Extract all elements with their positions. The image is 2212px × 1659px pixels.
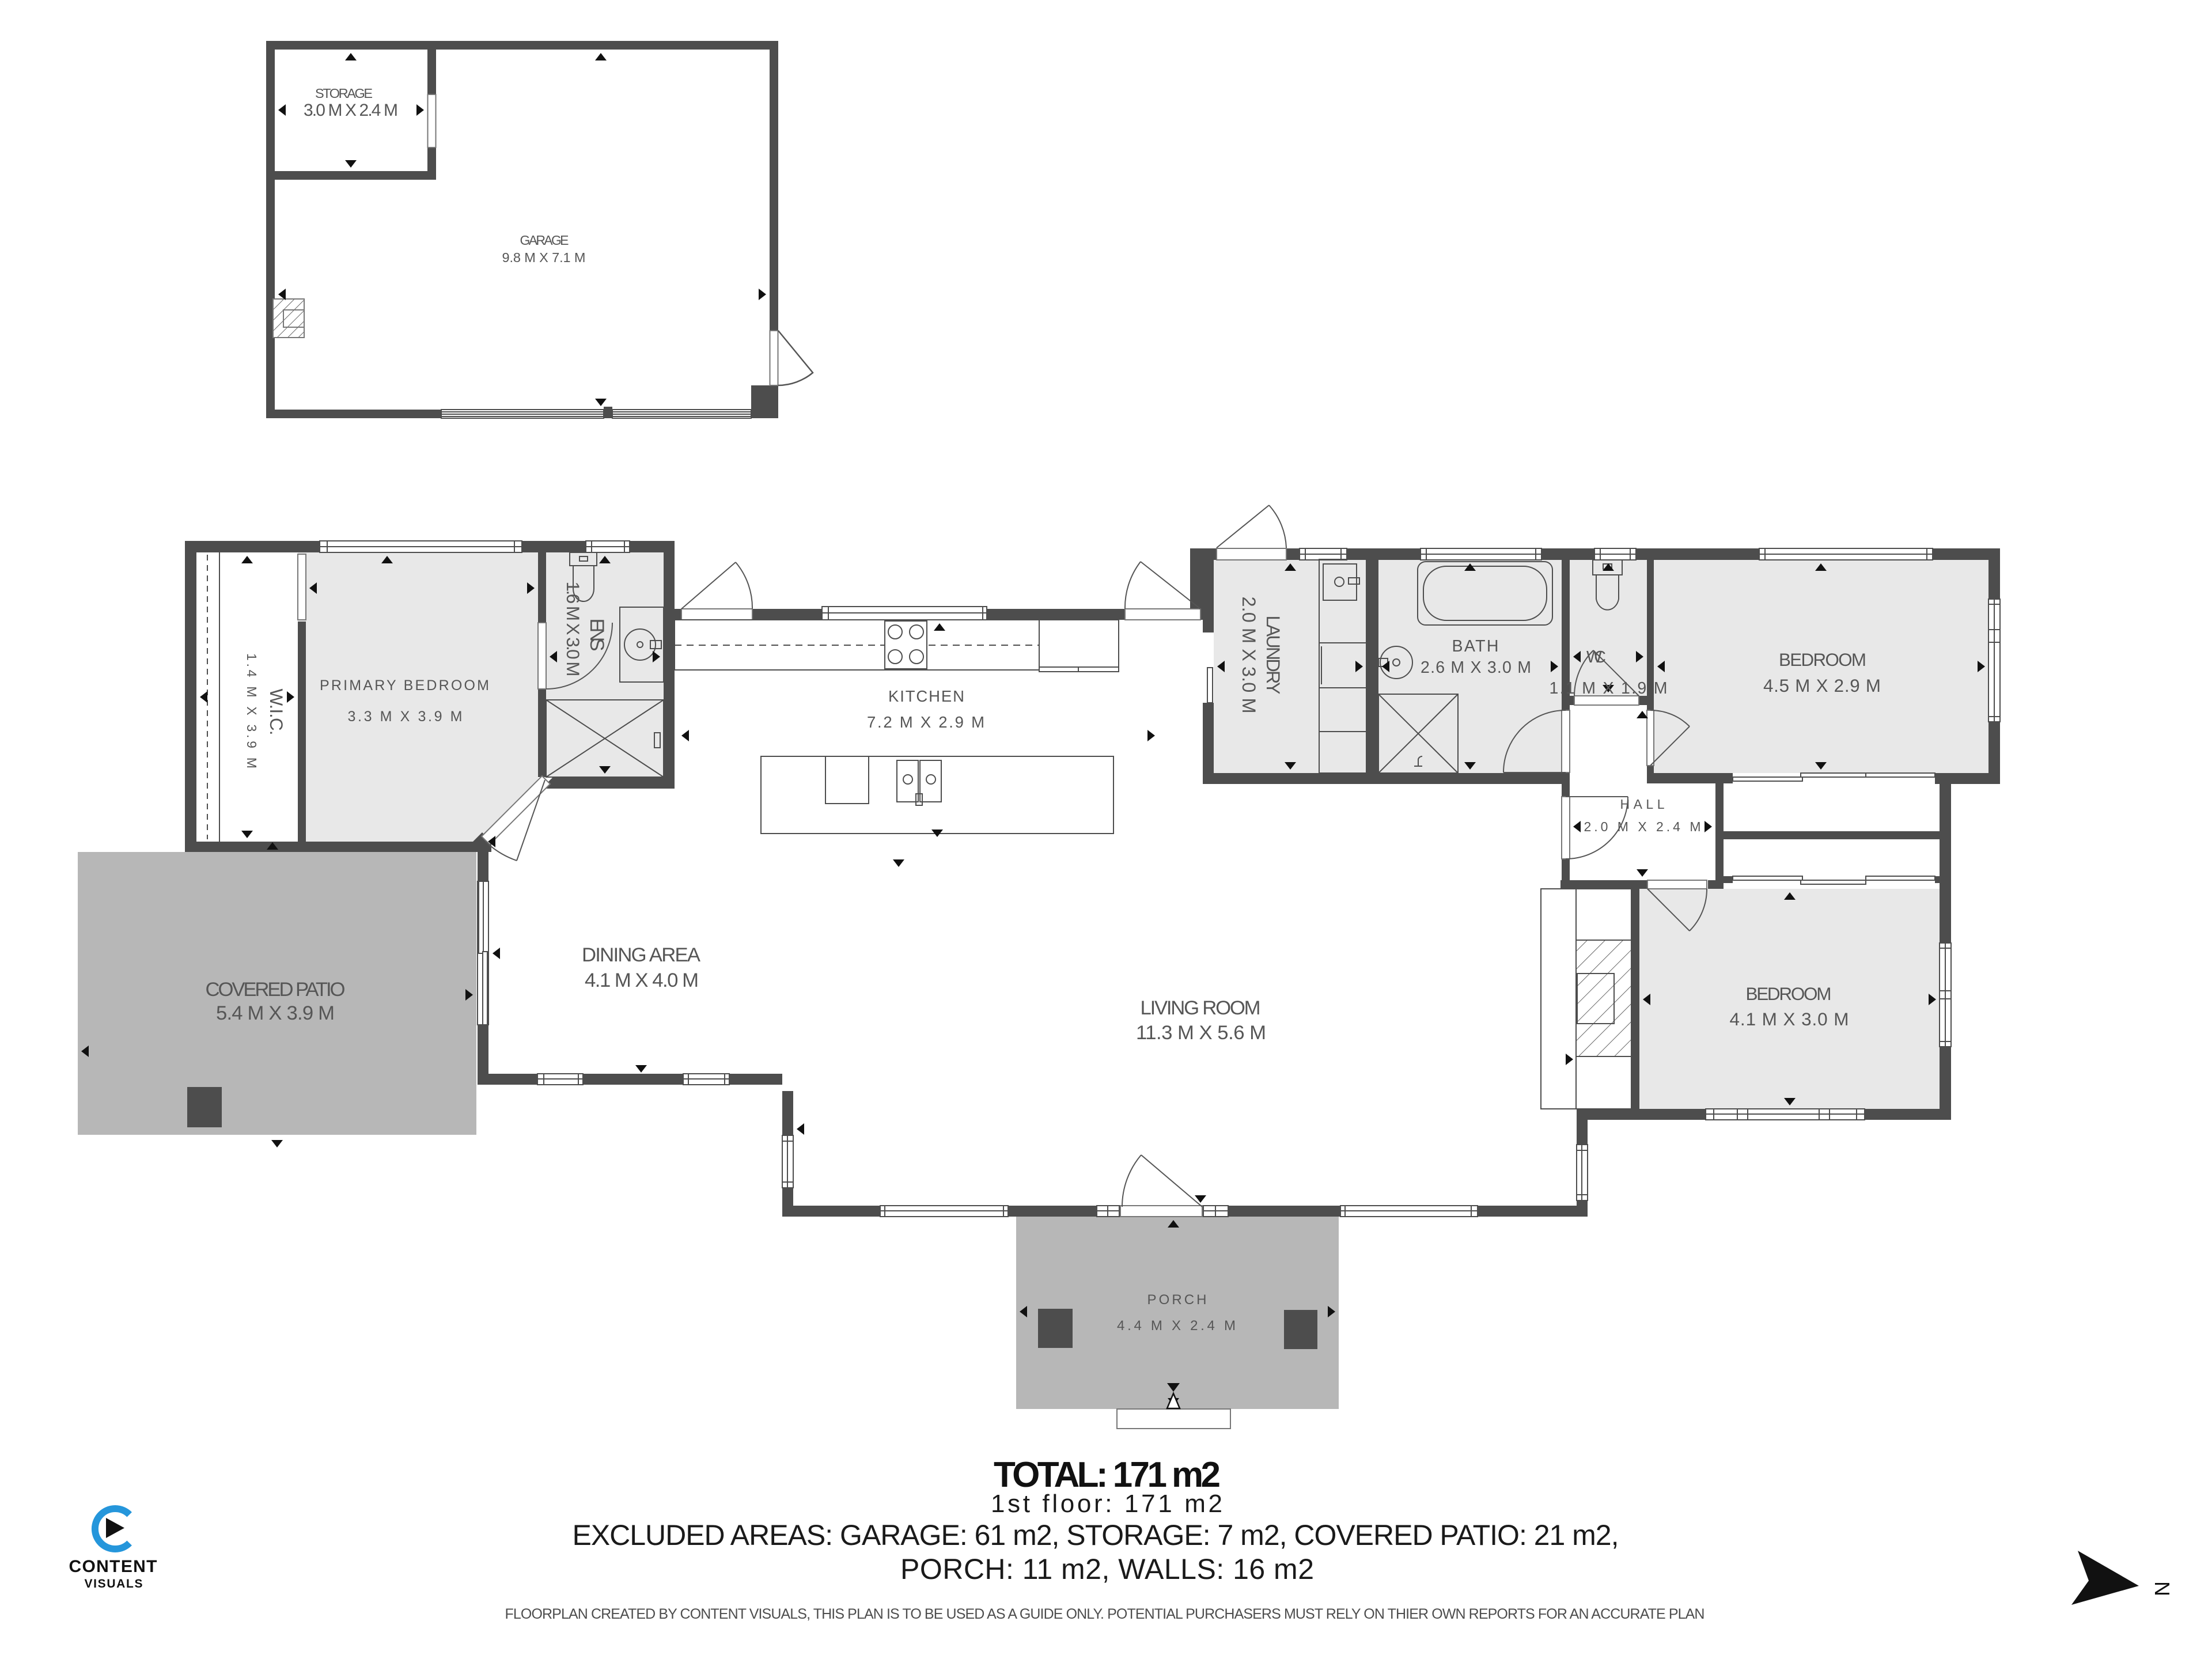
svg-text:STORAGE: STORAGE — [315, 86, 373, 101]
svg-text:PRIMARY BEDROOM: PRIMARY BEDROOM — [320, 677, 489, 694]
svg-text:9.8 M X 7.1 M: 9.8 M X 7.1 M — [502, 250, 586, 265]
svg-text:4.4 M X 2.4 M: 4.4 M X 2.4 M — [1117, 1318, 1236, 1334]
svg-text:5.4 M X 3.9 M: 5.4 M X 3.9 M — [216, 1002, 335, 1024]
svg-text:KITCHEN: KITCHEN — [888, 687, 964, 705]
svg-text:1st floor: 171 m2: 1st floor: 171 m2 — [991, 1490, 1222, 1518]
svg-text:4.1 M X 3.0 M: 4.1 M X 3.0 M — [1730, 1009, 1849, 1029]
svg-text:3.3 M X 3.9 M: 3.3 M X 3.9 M — [348, 709, 463, 725]
svg-text:PORCH: PORCH — [1147, 1292, 1207, 1308]
svg-text:EXCLUDED AREAS: GARAGE: 61 m2,: EXCLUDED AREAS: GARAGE: 61 m2, STORAGE: … — [573, 1519, 1619, 1551]
svg-text:N: N — [2150, 1581, 2174, 1596]
svg-text:3.0 M X 2.4 M: 3.0 M X 2.4 M — [304, 101, 398, 120]
svg-text:CONTENT: CONTENT — [69, 1557, 157, 1576]
svg-text:ENS: ENS — [586, 619, 608, 652]
svg-text:1.4 M X 3.9 M: 1.4 M X 3.9 M — [244, 653, 259, 768]
svg-text:LAUNDRY: LAUNDRY — [1263, 616, 1283, 695]
svg-text:7.2 M X 2.9 M: 7.2 M X 2.9 M — [867, 713, 984, 731]
svg-text:BEDROOM: BEDROOM — [1779, 650, 1866, 670]
svg-text:GARAGE: GARAGE — [520, 233, 569, 248]
svg-text:W.I.C.: W.I.C. — [266, 689, 287, 736]
svg-text:DINING AREA: DINING AREA — [582, 944, 701, 966]
svg-text:FLOORPLAN CREATED BY CONTENT V: FLOORPLAN CREATED BY CONTENT VISUALS, TH… — [505, 1606, 1705, 1622]
svg-text:2.0 M X 2.4 M: 2.0 M X 2.4 M — [1584, 819, 1701, 834]
svg-text:11.3 M X 5.6 M: 11.3 M X 5.6 M — [1136, 1022, 1266, 1044]
svg-text:2.6 M X 3.0 M: 2.6 M X 3.0 M — [1421, 658, 1531, 677]
svg-text:1.6 M X 3.0 M: 1.6 M X 3.0 M — [563, 582, 584, 677]
svg-text:WC: WC — [1586, 648, 1606, 666]
svg-text:1.1 M X 1.9 M: 1.1 M X 1.9 M — [1550, 679, 1668, 698]
svg-text:4.1 M X 4.0 M: 4.1 M X 4.0 M — [585, 969, 699, 991]
svg-text:COVERED PATIO: COVERED PATIO — [206, 979, 346, 1001]
svg-text:TOTAL: 171 m2: TOTAL: 171 m2 — [994, 1455, 1221, 1495]
svg-text:4.5 M X 2.9 M: 4.5 M X 2.9 M — [1763, 676, 1881, 696]
svg-text:BATH: BATH — [1452, 637, 1499, 656]
svg-text:2.0 M X 3.0 M: 2.0 M X 3.0 M — [1238, 597, 1259, 714]
svg-text:BEDROOM: BEDROOM — [1746, 983, 1832, 1004]
svg-text:PORCH: 11 m2, WALLS: 16 m2: PORCH: 11 m2, WALLS: 16 m2 — [900, 1553, 1314, 1585]
svg-text:LIVING ROOM: LIVING ROOM — [1141, 997, 1261, 1019]
